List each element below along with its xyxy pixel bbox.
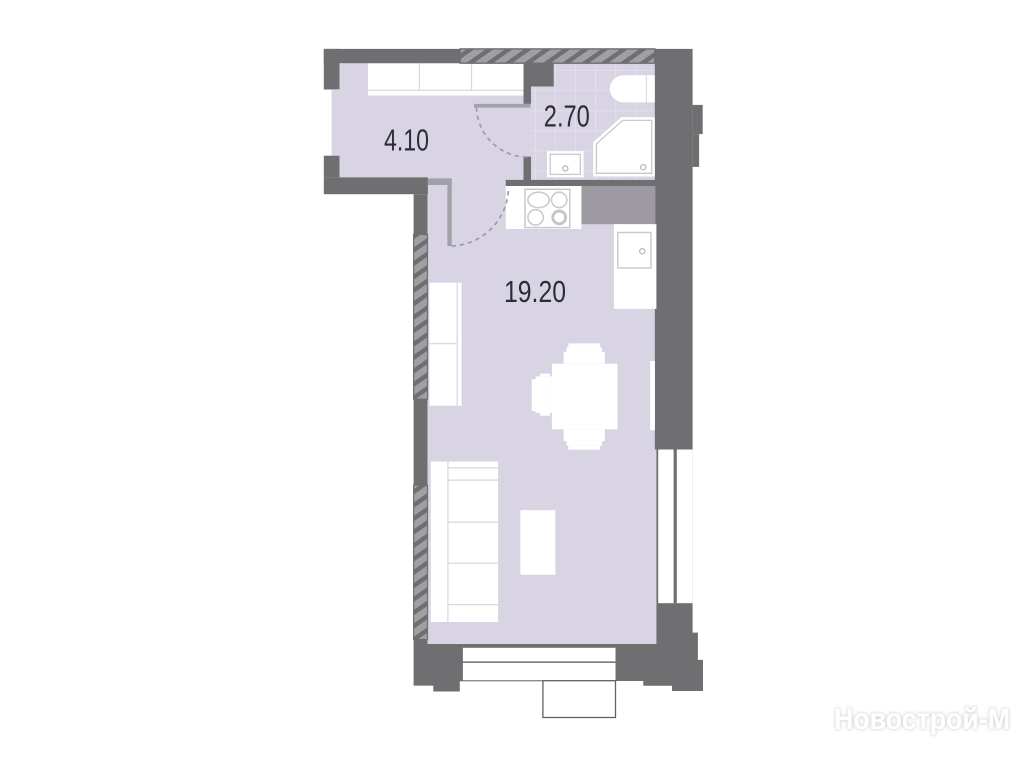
svg-text:2.70: 2.70 (544, 98, 590, 133)
svg-text:Новострой-М: Новострой-М (834, 703, 1010, 736)
svg-text:4.10: 4.10 (384, 123, 429, 158)
svg-text:19.20: 19.20 (504, 275, 566, 309)
